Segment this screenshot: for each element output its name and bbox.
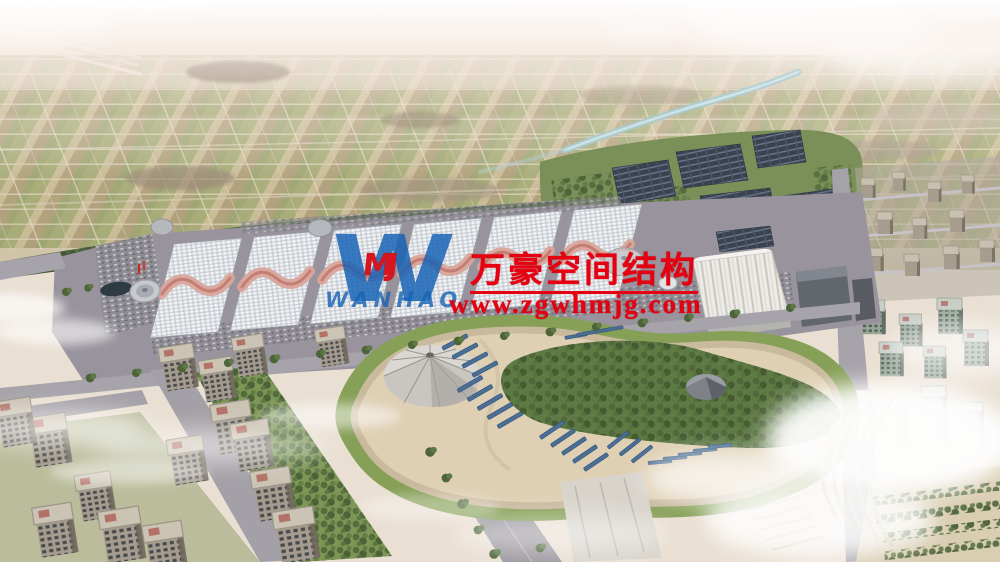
red-flag-sculpture (138, 264, 140, 274)
back-dome-1 (151, 219, 173, 235)
website-url: www.zgwhmjg.com (449, 291, 702, 318)
cone-dome (686, 374, 726, 400)
aerial-rendering: W MJ WANHAO 万豪空间结构 www.zgwhmjg.com (0, 0, 1000, 562)
back-dome-2 (308, 220, 332, 237)
horizon-haze (0, 0, 1000, 110)
logo-mj-monogram-icon: MJ (361, 251, 393, 281)
company-name-cn: 万豪空间结构 (470, 253, 698, 294)
logo-subtext: WANHAO (325, 290, 462, 311)
event-tent-dome (384, 345, 480, 407)
